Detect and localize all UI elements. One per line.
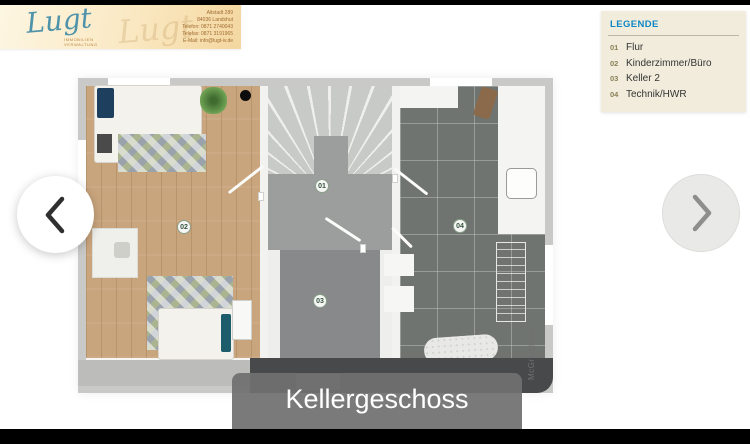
legend-title: LEGENDE [610, 19, 746, 30]
wall [260, 86, 268, 358]
legend-item-label: Keller 2 [626, 73, 660, 84]
wall [268, 250, 280, 358]
counter [400, 86, 458, 108]
room-flur [268, 174, 392, 250]
nightstand [232, 300, 252, 340]
legend-item-flur: 01 Flur [601, 42, 746, 58]
stair-landing [314, 136, 348, 180]
room-keller2 [280, 250, 380, 358]
slide-caption: Kellergeschoss [232, 373, 522, 429]
plan-watermark: McGrundriss [527, 296, 536, 380]
rug [118, 134, 206, 172]
legend-item-label: Flur [626, 42, 643, 53]
floor-name: Kellergeschoss [285, 384, 468, 429]
room-label-04: 04 [453, 219, 467, 233]
letterhead: Lugt Lugt IMMOBILIEN VERWALTUNG Altstadt… [0, 4, 241, 49]
previous-slide-button[interactable] [17, 176, 94, 253]
floorplan-image: 01 02 03 04 McGrundriss [78, 78, 553, 393]
chimney [240, 90, 251, 101]
top-black-bar [0, 0, 750, 5]
door-jamb [360, 244, 366, 253]
pillow [97, 88, 114, 118]
next-slide-button[interactable] [662, 174, 740, 252]
brand-subtitle-line2: VERWALTUNG [64, 43, 98, 48]
legend-item-keller2: 03 Keller 2 [601, 73, 746, 89]
legend-item-label: Technik/HWR [626, 89, 687, 100]
legend-item-label: Kinderzimmer/Büro [626, 58, 712, 69]
window [430, 78, 492, 86]
door-jamb [392, 174, 398, 183]
brand-logo: Lugt [25, 1, 93, 40]
chair [114, 242, 130, 258]
legend-item-technik: 04 Technik/HWR [601, 89, 746, 105]
legend-item-kinderzimmer: 02 Kinderzimmer/Büro [601, 58, 746, 74]
legend-divider [608, 35, 739, 36]
sink [506, 168, 537, 199]
plant [200, 87, 227, 114]
pillow [221, 314, 231, 352]
door-jamb [258, 192, 264, 201]
legend-item-number: 04 [610, 90, 626, 99]
letterhead-address: Altstadt 289 84036 Landshut Telefon: 087… [182, 10, 233, 45]
shelf [384, 286, 414, 312]
wall [392, 86, 400, 358]
room-label-02: 02 [177, 220, 191, 234]
brand-subtitle: IMMOBILIEN VERWALTUNG [64, 38, 98, 47]
legend-panel: LEGENDE 01 Flur 02 Kinderzimmer/Büro 03 … [601, 11, 746, 112]
bottom-black-bar [0, 429, 750, 444]
counter [498, 86, 545, 234]
room-label-01: 01 [315, 179, 329, 193]
room-label-03: 03 [313, 294, 327, 308]
address-line: Telefon: 0871 2740043 [182, 24, 233, 31]
chevron-left-icon [36, 187, 76, 243]
chevron-right-icon [681, 185, 721, 241]
legend-item-number: 01 [610, 43, 626, 52]
address-line: 84036 Landshut [182, 17, 233, 24]
nightstand [97, 134, 112, 153]
address-line: Telefax: 0871 3191965 [182, 31, 233, 38]
terrace [78, 360, 250, 386]
drying-rack [496, 242, 526, 322]
shelf [384, 254, 414, 276]
address-line: Altstadt 289 [182, 10, 233, 17]
legend-item-number: 03 [610, 74, 626, 83]
legend-item-number: 02 [610, 59, 626, 68]
address-line: E-Mail: info@lugt-iv.de [182, 38, 233, 45]
